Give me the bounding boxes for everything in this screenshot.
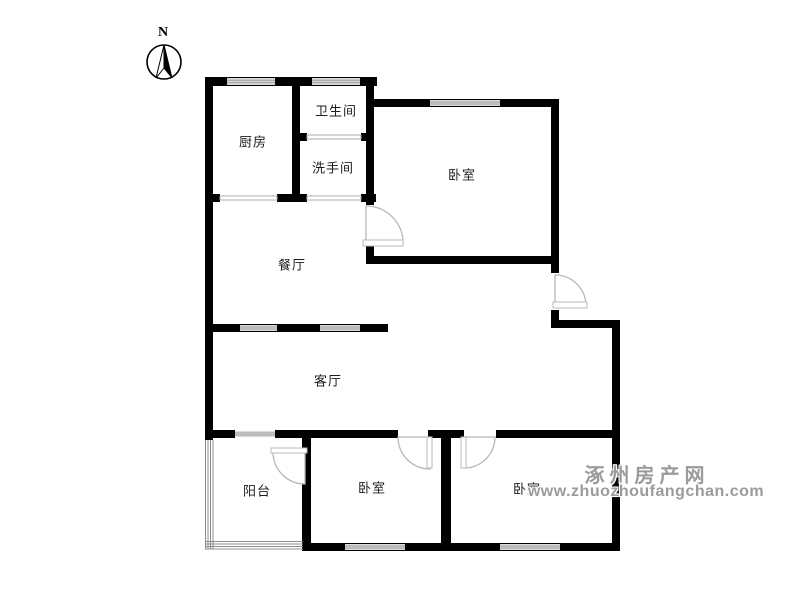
compass-north-label: N	[158, 25, 168, 41]
kitchen-opening	[220, 196, 277, 200]
wall	[205, 324, 388, 332]
room-label-bathroom: 卫生间	[315, 101, 357, 120]
room-label-dining: 餐厅	[278, 255, 306, 274]
wall	[366, 256, 559, 264]
room-label-washroom: 洗手间	[312, 158, 354, 177]
window-icon	[500, 544, 560, 550]
room-label-kitchen: 厨房	[239, 132, 267, 151]
window-icon	[240, 325, 277, 331]
doors-layer	[271, 206, 587, 484]
room-label-balcony: 阳台	[243, 481, 271, 500]
wall	[551, 320, 620, 328]
wall	[441, 430, 451, 551]
window-icon	[430, 100, 500, 106]
watermark-url: www.zhuozhoufangchan.com	[528, 483, 764, 501]
floorplan-drawing	[0, 0, 800, 600]
wall	[205, 77, 213, 440]
window-icon	[320, 325, 360, 331]
wall	[292, 133, 307, 141]
floorplan-page: 厨房 卫生间 洗手间 卧室 餐厅 客厅 阳台 卧室 卧室 N 涿州房产网 www…	[0, 0, 800, 600]
north-arrow-icon	[147, 45, 181, 79]
wall	[551, 99, 559, 273]
window-icon	[227, 78, 275, 85]
room-label-living: 客厅	[314, 371, 342, 390]
wall	[205, 194, 220, 202]
wall	[361, 194, 376, 202]
door-balcony	[271, 448, 307, 484]
room-label-bedroom-middle: 卧室	[358, 478, 386, 497]
washroom-opening	[307, 196, 361, 200]
wall	[277, 194, 307, 202]
window-icon	[235, 431, 275, 437]
bathroom-opening	[307, 135, 361, 139]
window-icon	[312, 78, 360, 85]
wall	[496, 430, 616, 438]
windows-layer	[227, 78, 560, 550]
wall	[275, 430, 398, 438]
door-entry	[553, 275, 587, 308]
door-bedroom-right	[461, 437, 495, 468]
wall	[205, 430, 235, 438]
door-bedroom-middle	[398, 437, 432, 469]
door-bedroom-top	[363, 206, 403, 246]
wall	[361, 133, 374, 141]
window-icon	[345, 544, 405, 550]
room-label-bedroom-top: 卧室	[448, 165, 476, 184]
